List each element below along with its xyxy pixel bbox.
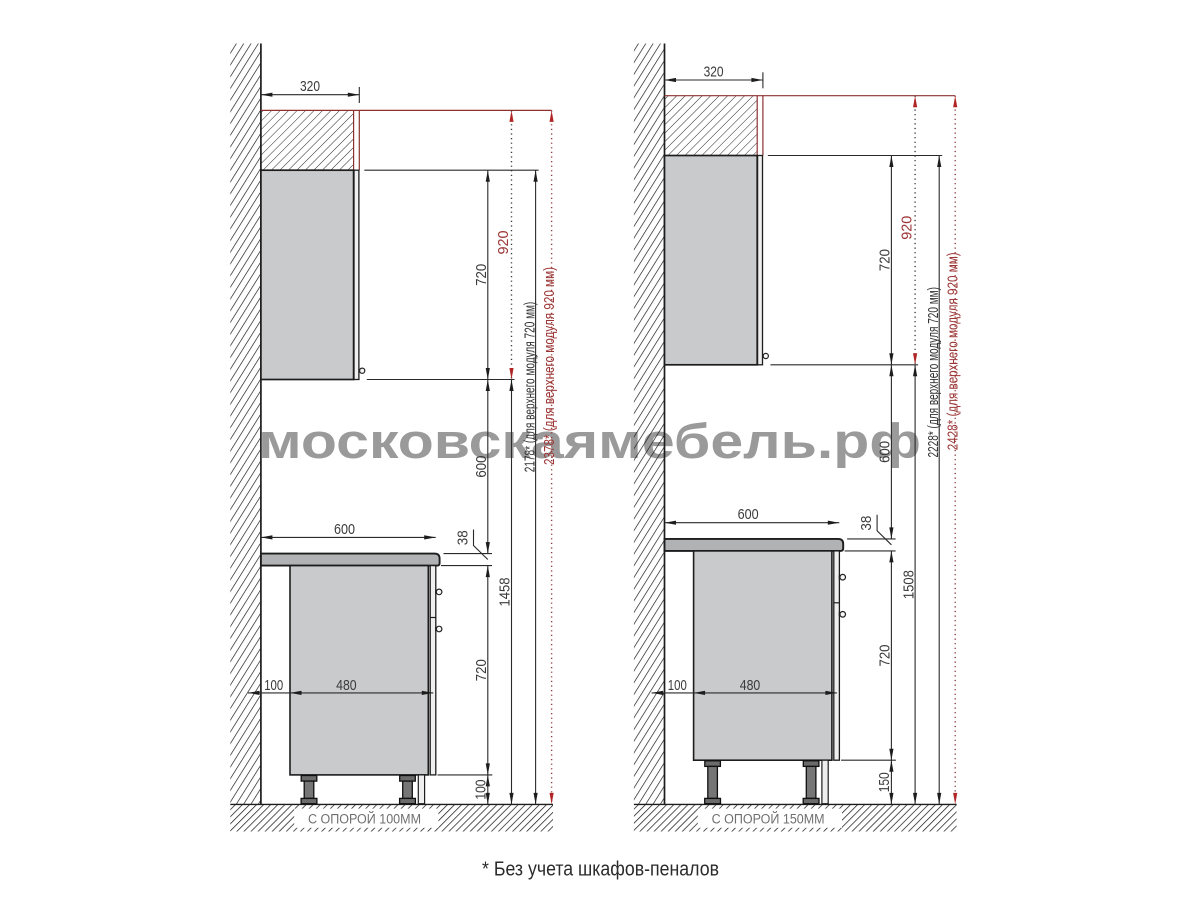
svg-text:720: 720 [877,249,894,271]
svg-text:480: 480 [740,677,761,694]
svg-text:920: 920 [495,231,512,255]
svg-text:1508: 1508 [900,570,917,599]
svg-text:2378* (для верхнего модуля 920: 2378* (для верхнего модуля 920 мм) [542,267,558,465]
svg-text:100: 100 [264,677,283,694]
svg-text:2228* (для верхнего модуля 720: 2228* (для верхнего модуля 720 мм) [926,287,942,458]
svg-text:150: 150 [876,772,893,792]
svg-text:320: 320 [704,63,724,80]
svg-text:480: 480 [336,677,357,694]
svg-text:920: 920 [899,216,916,240]
svg-text:С ОПОРОЙ 150ММ: С ОПОРОЙ 150ММ [712,812,825,827]
svg-text:720: 720 [473,659,490,681]
svg-text:600: 600 [738,506,759,523]
svg-text:100: 100 [668,677,687,694]
svg-text:100: 100 [472,780,489,800]
svg-text:* Без учета шкафов-пеналов: * Без учета шкафов-пеналов [482,858,719,881]
svg-text:2428* (для верхнего модуля 920: 2428* (для верхнего модуля 920 мм) [945,252,961,450]
svg-text:С ОПОРОЙ 100ММ: С ОПОРОЙ 100ММ [308,812,421,827]
svg-text:600: 600 [877,441,894,463]
svg-text:320: 320 [300,78,320,95]
svg-text:1458: 1458 [497,578,514,607]
svg-text:720: 720 [877,645,894,667]
svg-text:38: 38 [455,530,472,545]
svg-text:720: 720 [473,264,490,286]
svg-text:600: 600 [473,456,490,478]
svg-text:московскаямебель.рф: московскаямебель.рф [258,415,921,469]
svg-text:600: 600 [334,521,355,538]
svg-text:38: 38 [858,516,875,531]
svg-text:2178* (для верхнего модуля 720: 2178* (для верхнего модуля 720 мм) [523,302,539,473]
